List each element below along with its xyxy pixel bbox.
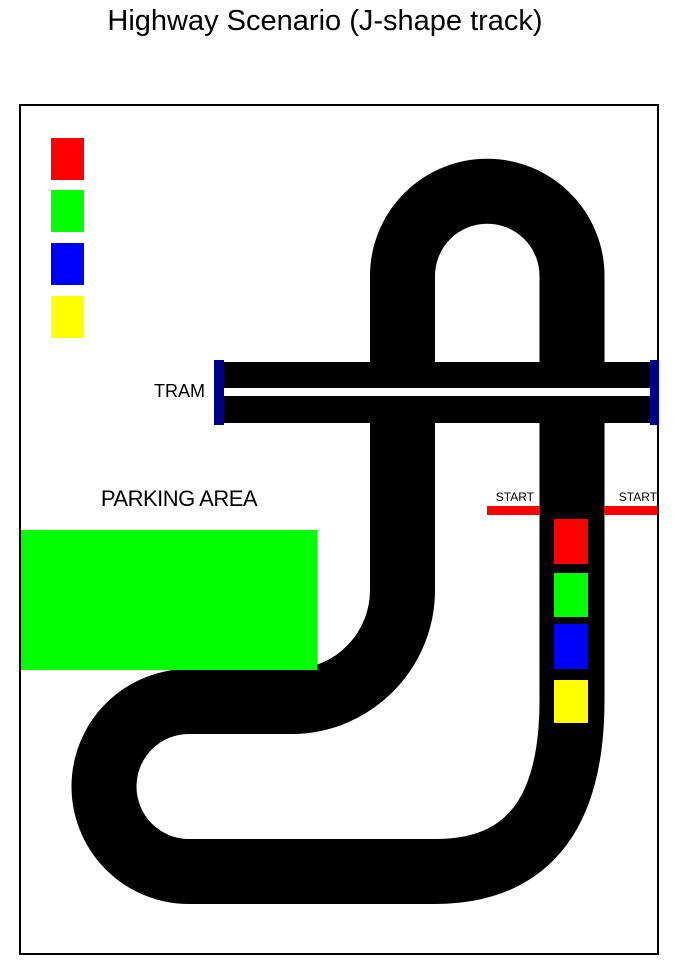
legend-swatch-yellow (51, 296, 84, 338)
tram-label: TRAM (85, 379, 205, 403)
start-line-right (604, 506, 657, 515)
legend-swatch-red (51, 138, 84, 180)
parking-area-label: PARKING AREA (29, 488, 329, 510)
vehicle-yellow (554, 680, 588, 723)
tram-end-cap-left (214, 360, 224, 425)
vehicle-green (554, 573, 588, 617)
legend-swatch-blue (51, 243, 84, 285)
scenario-canvas: PARKING AREA TRAM START START (19, 104, 659, 955)
start-label-right: START (557, 490, 657, 504)
vehicle-red (554, 519, 588, 564)
tram-center-line (224, 388, 650, 396)
vehicle-blue (554, 624, 588, 669)
figure-page: { "title": "Highway Scenario (J-shape tr… (0, 0, 674, 963)
tram-end-cap-right (650, 360, 659, 425)
start-label-left: START (434, 490, 534, 504)
parking-area-zone (21, 530, 317, 670)
diagram-title: Highway Scenario (J-shape track) (0, 3, 650, 39)
legend-swatch-green (51, 190, 84, 232)
start-line-left (487, 506, 540, 515)
